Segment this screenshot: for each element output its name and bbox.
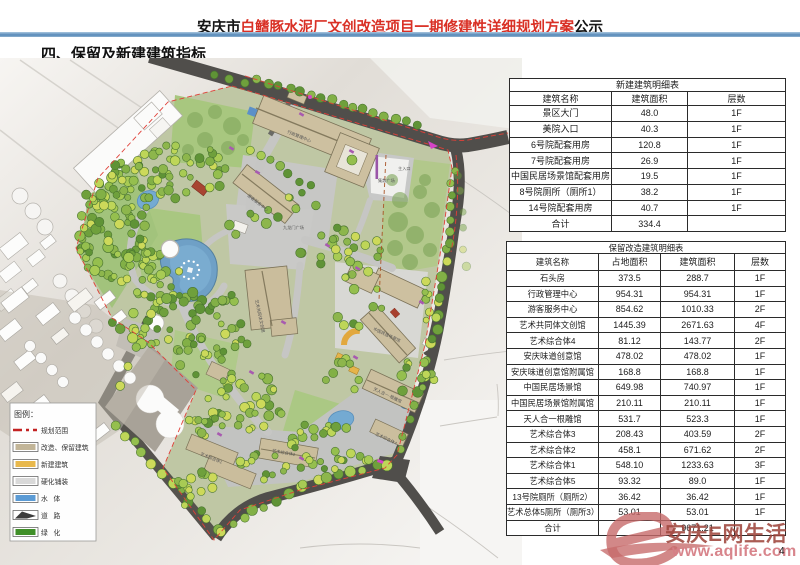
svg-text:硬化铺装: 硬化铺装 <box>41 477 68 486</box>
svg-text:九龙门广场: 九龙门广场 <box>283 224 304 231</box>
svg-text:绿 化: 绿 化 <box>41 528 60 537</box>
svg-text:主入口: 主入口 <box>398 165 411 171</box>
svg-text:水 体: 水 体 <box>41 494 60 503</box>
svg-text:规划范围: 规划范围 <box>41 426 68 435</box>
svg-text:新建建筑: 新建建筑 <box>41 460 68 469</box>
svg-text:图例：: 图例： <box>14 409 38 419</box>
svg-text:集散广场: 集散广场 <box>378 177 395 184</box>
svg-text:道 路: 道 路 <box>41 511 60 520</box>
svg-text:改造、保留建筑: 改造、保留建筑 <box>41 443 89 452</box>
